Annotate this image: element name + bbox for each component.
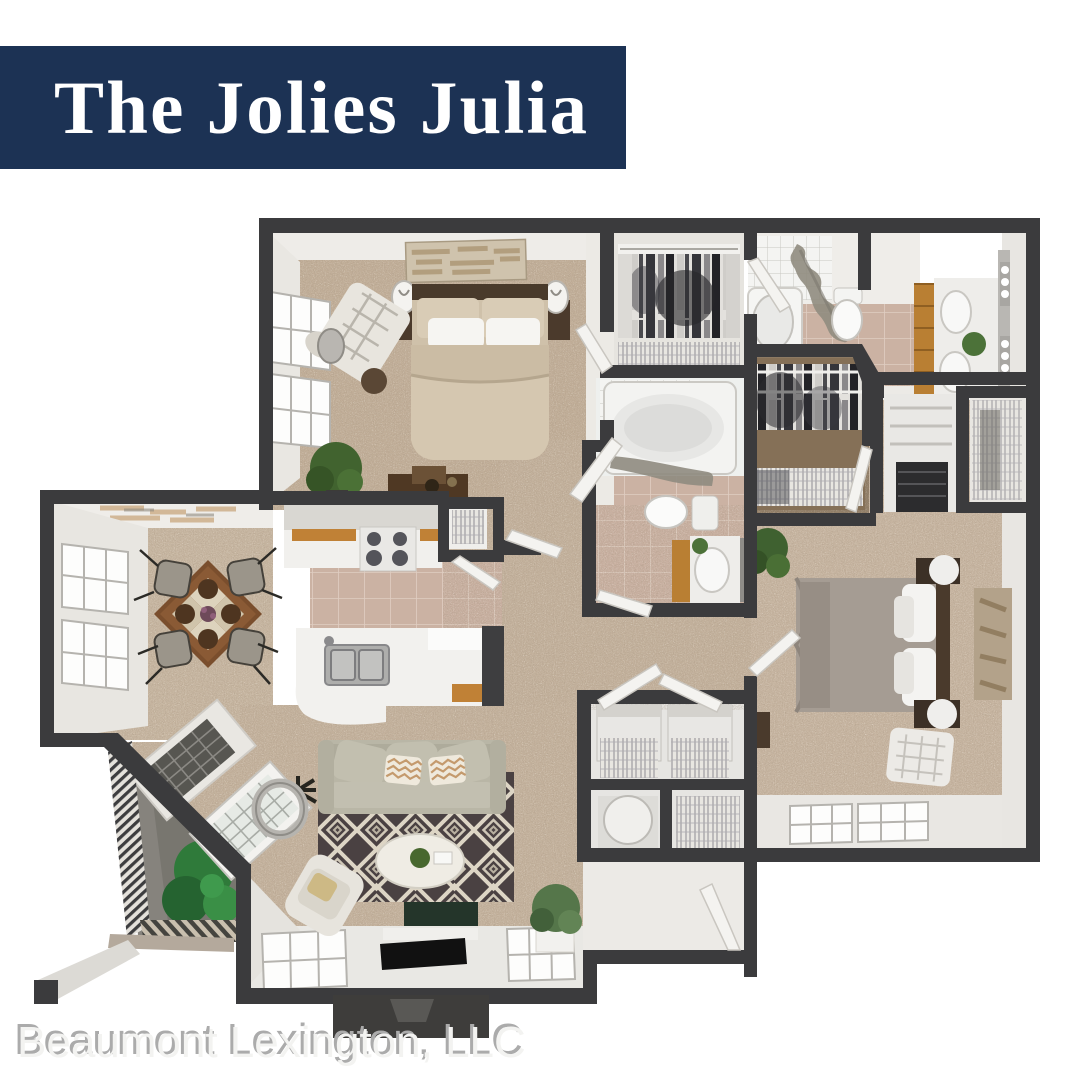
svg-text:The Jolies Julia: The Jolies Julia [54, 67, 589, 150]
svg-text:Beaumont Lexington, LLC: Beaumont Lexington, LLC [17, 1018, 526, 1067]
